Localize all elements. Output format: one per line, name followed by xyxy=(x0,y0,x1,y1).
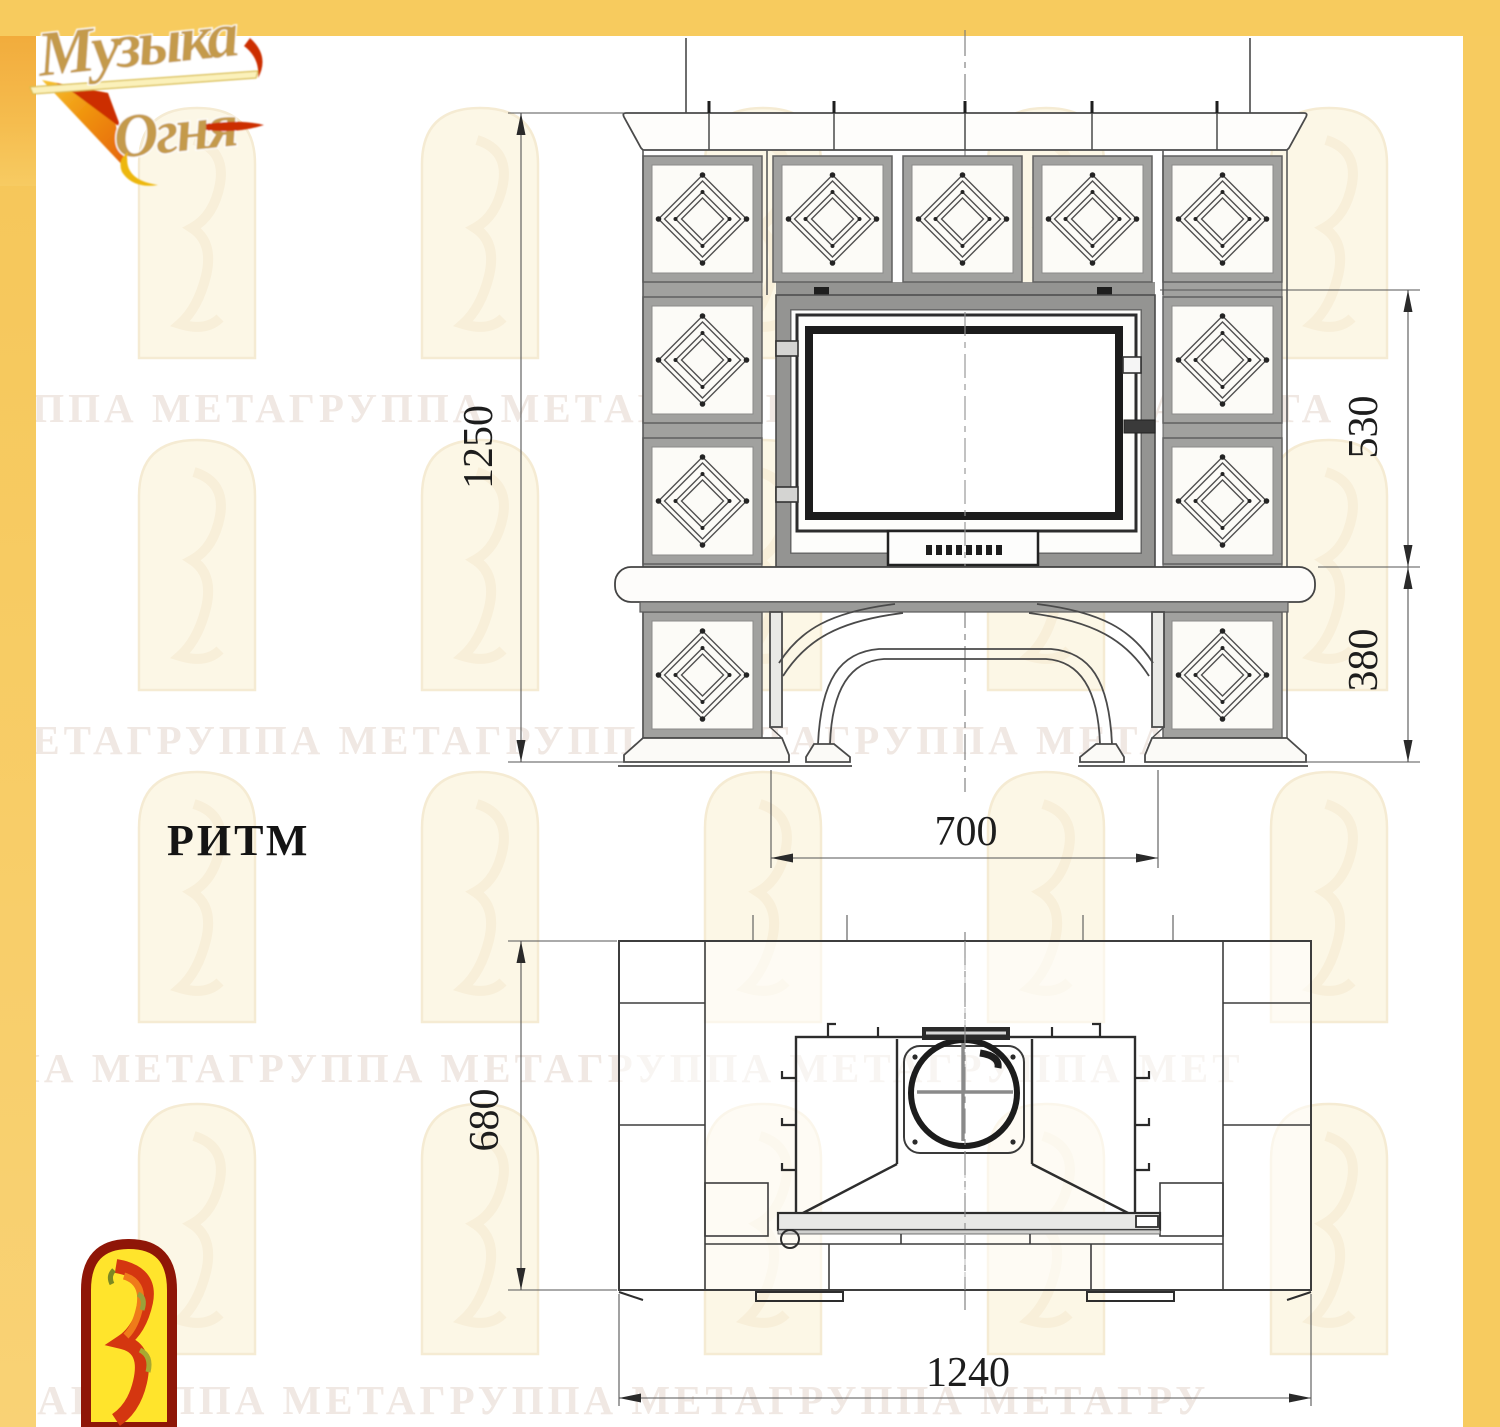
svg-text:380: 380 xyxy=(1341,629,1387,692)
svg-text:680: 680 xyxy=(462,1089,508,1152)
svg-text:700: 700 xyxy=(935,809,998,855)
svg-text:1250: 1250 xyxy=(456,405,502,489)
svg-text:530: 530 xyxy=(1341,396,1387,459)
svg-text:Огня: Огня xyxy=(110,91,240,171)
svg-text:1240: 1240 xyxy=(926,1350,1010,1396)
